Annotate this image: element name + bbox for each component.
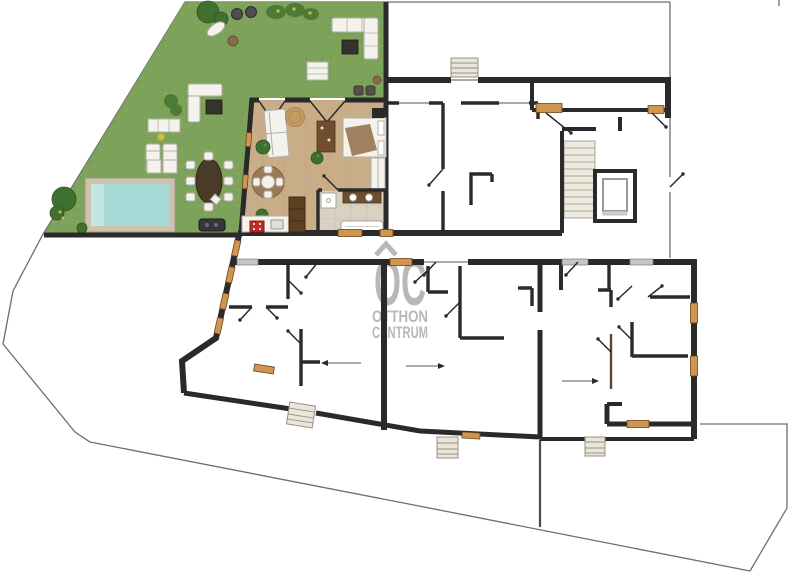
sink bbox=[271, 220, 283, 229]
yellow-flower bbox=[158, 134, 165, 141]
console bbox=[317, 121, 335, 152]
sink bbox=[365, 194, 372, 201]
floor-plan-canvas: OC OTTHON CENTRUM bbox=[0, 0, 800, 575]
garden-sideboard bbox=[148, 119, 180, 132]
shower-tray bbox=[321, 193, 336, 208]
window-sill bbox=[562, 259, 588, 265]
window-sill bbox=[630, 259, 653, 265]
bbq-grill bbox=[199, 219, 225, 231]
steps-south-right bbox=[585, 437, 605, 456]
stairwell bbox=[564, 141, 595, 218]
steps-south-middle bbox=[437, 437, 458, 458]
round-rug bbox=[286, 108, 305, 127]
pillow bbox=[378, 121, 384, 135]
elevator-car bbox=[603, 179, 627, 211]
steps-top bbox=[451, 58, 478, 77]
plant bbox=[256, 140, 270, 154]
swimming-pool bbox=[85, 178, 175, 232]
pillow bbox=[378, 141, 384, 155]
floor-plan-svg: OC OTTHON CENTRUM bbox=[0, 0, 800, 575]
elevator bbox=[595, 171, 635, 221]
wood-window bbox=[536, 104, 562, 113]
bathroom bbox=[319, 191, 385, 232]
wood-window bbox=[338, 230, 362, 237]
bathroom-vanity bbox=[343, 192, 381, 203]
lower-block-west-wall bbox=[182, 235, 239, 393]
garden-bench bbox=[307, 62, 328, 80]
upper-block-north-wall bbox=[388, 80, 668, 118]
watermark-line2: CENTRUM bbox=[372, 323, 428, 342]
dining-set bbox=[252, 166, 284, 198]
wood-window bbox=[648, 106, 664, 114]
wood-window bbox=[380, 230, 393, 237]
steps-southwest bbox=[286, 402, 315, 428]
sink bbox=[349, 194, 356, 201]
dining-table bbox=[262, 176, 275, 189]
plant bbox=[311, 152, 323, 164]
wood-window bbox=[390, 259, 412, 266]
bed bbox=[343, 118, 386, 157]
kitchen-cabinets bbox=[289, 197, 305, 232]
garden-coffee-table bbox=[342, 40, 358, 54]
tv-unit bbox=[372, 108, 384, 118]
window-sill bbox=[237, 259, 258, 265]
stove bbox=[250, 221, 264, 232]
